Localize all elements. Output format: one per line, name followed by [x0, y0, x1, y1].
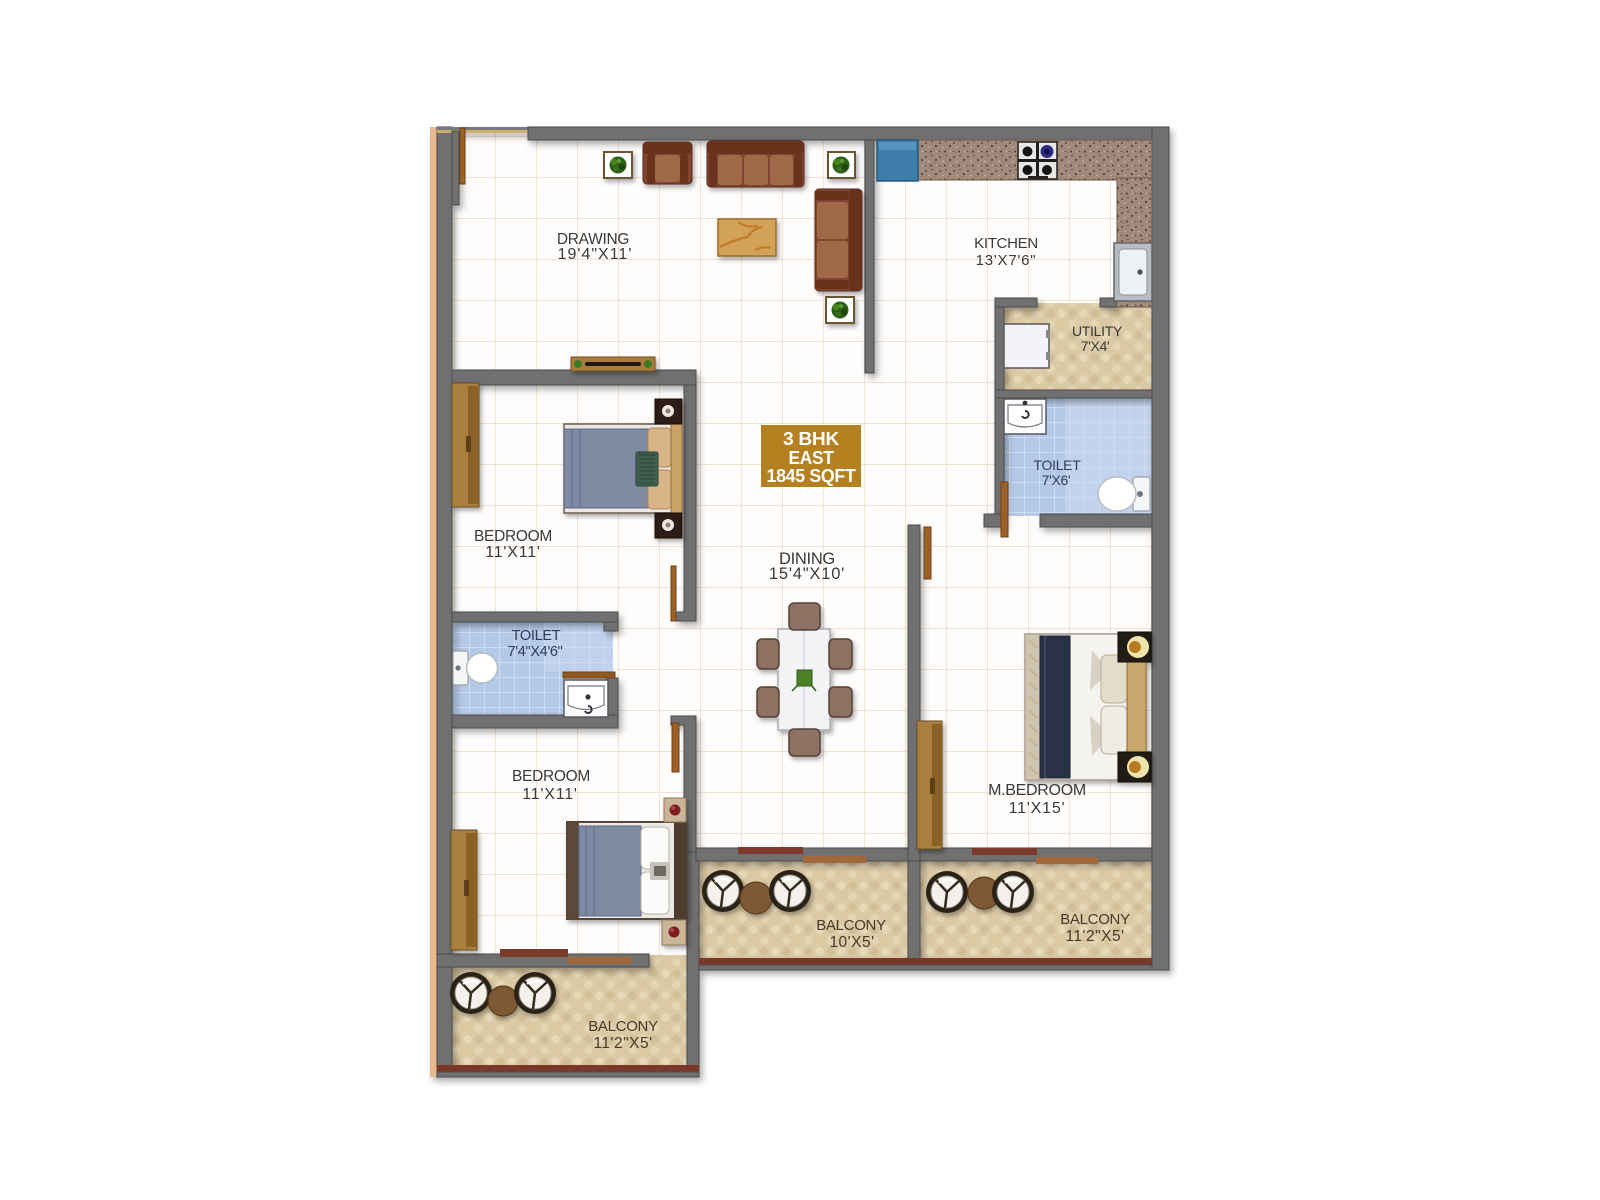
svg-text:TOILET: TOILET — [512, 628, 561, 644]
svg-text:13'X7'6": 13'X7'6" — [976, 252, 1037, 269]
svg-text:M.BEDROOM: M.BEDROOM — [988, 782, 1086, 799]
svg-text:1845 SQFT: 1845 SQFT — [767, 466, 856, 486]
svg-text:10'X5': 10'X5' — [829, 934, 874, 951]
svg-text:BALCONY: BALCONY — [816, 917, 886, 934]
svg-text:11'2"X5': 11'2"X5' — [593, 1035, 652, 1052]
svg-text:EAST: EAST — [789, 448, 834, 468]
svg-text:7'4"X4'6": 7'4"X4'6" — [507, 644, 562, 660]
svg-text:BEDROOM: BEDROOM — [512, 768, 590, 785]
svg-text:BALCONY: BALCONY — [1060, 911, 1130, 928]
svg-text:11'X15': 11'X15' — [1009, 800, 1066, 817]
svg-text:11'2"X5': 11'2"X5' — [1065, 928, 1124, 945]
svg-text:19'4"X11': 19'4"X11' — [558, 246, 633, 263]
svg-text:15'4"X10': 15'4"X10' — [769, 565, 845, 583]
svg-text:KITCHEN: KITCHEN — [974, 235, 1038, 252]
svg-text:TOILET: TOILET — [1034, 457, 1082, 473]
svg-text:7'X6': 7'X6' — [1042, 472, 1071, 488]
svg-text:BALCONY: BALCONY — [588, 1018, 658, 1035]
svg-text:UTILITY: UTILITY — [1072, 323, 1123, 339]
svg-text:11'X11': 11'X11' — [485, 544, 541, 561]
svg-text:11'X11': 11'X11' — [522, 786, 578, 803]
svg-text:BEDROOM: BEDROOM — [474, 528, 552, 545]
svg-text:3 BHK: 3 BHK — [783, 429, 839, 449]
svg-text:7'X4': 7'X4' — [1081, 338, 1110, 354]
